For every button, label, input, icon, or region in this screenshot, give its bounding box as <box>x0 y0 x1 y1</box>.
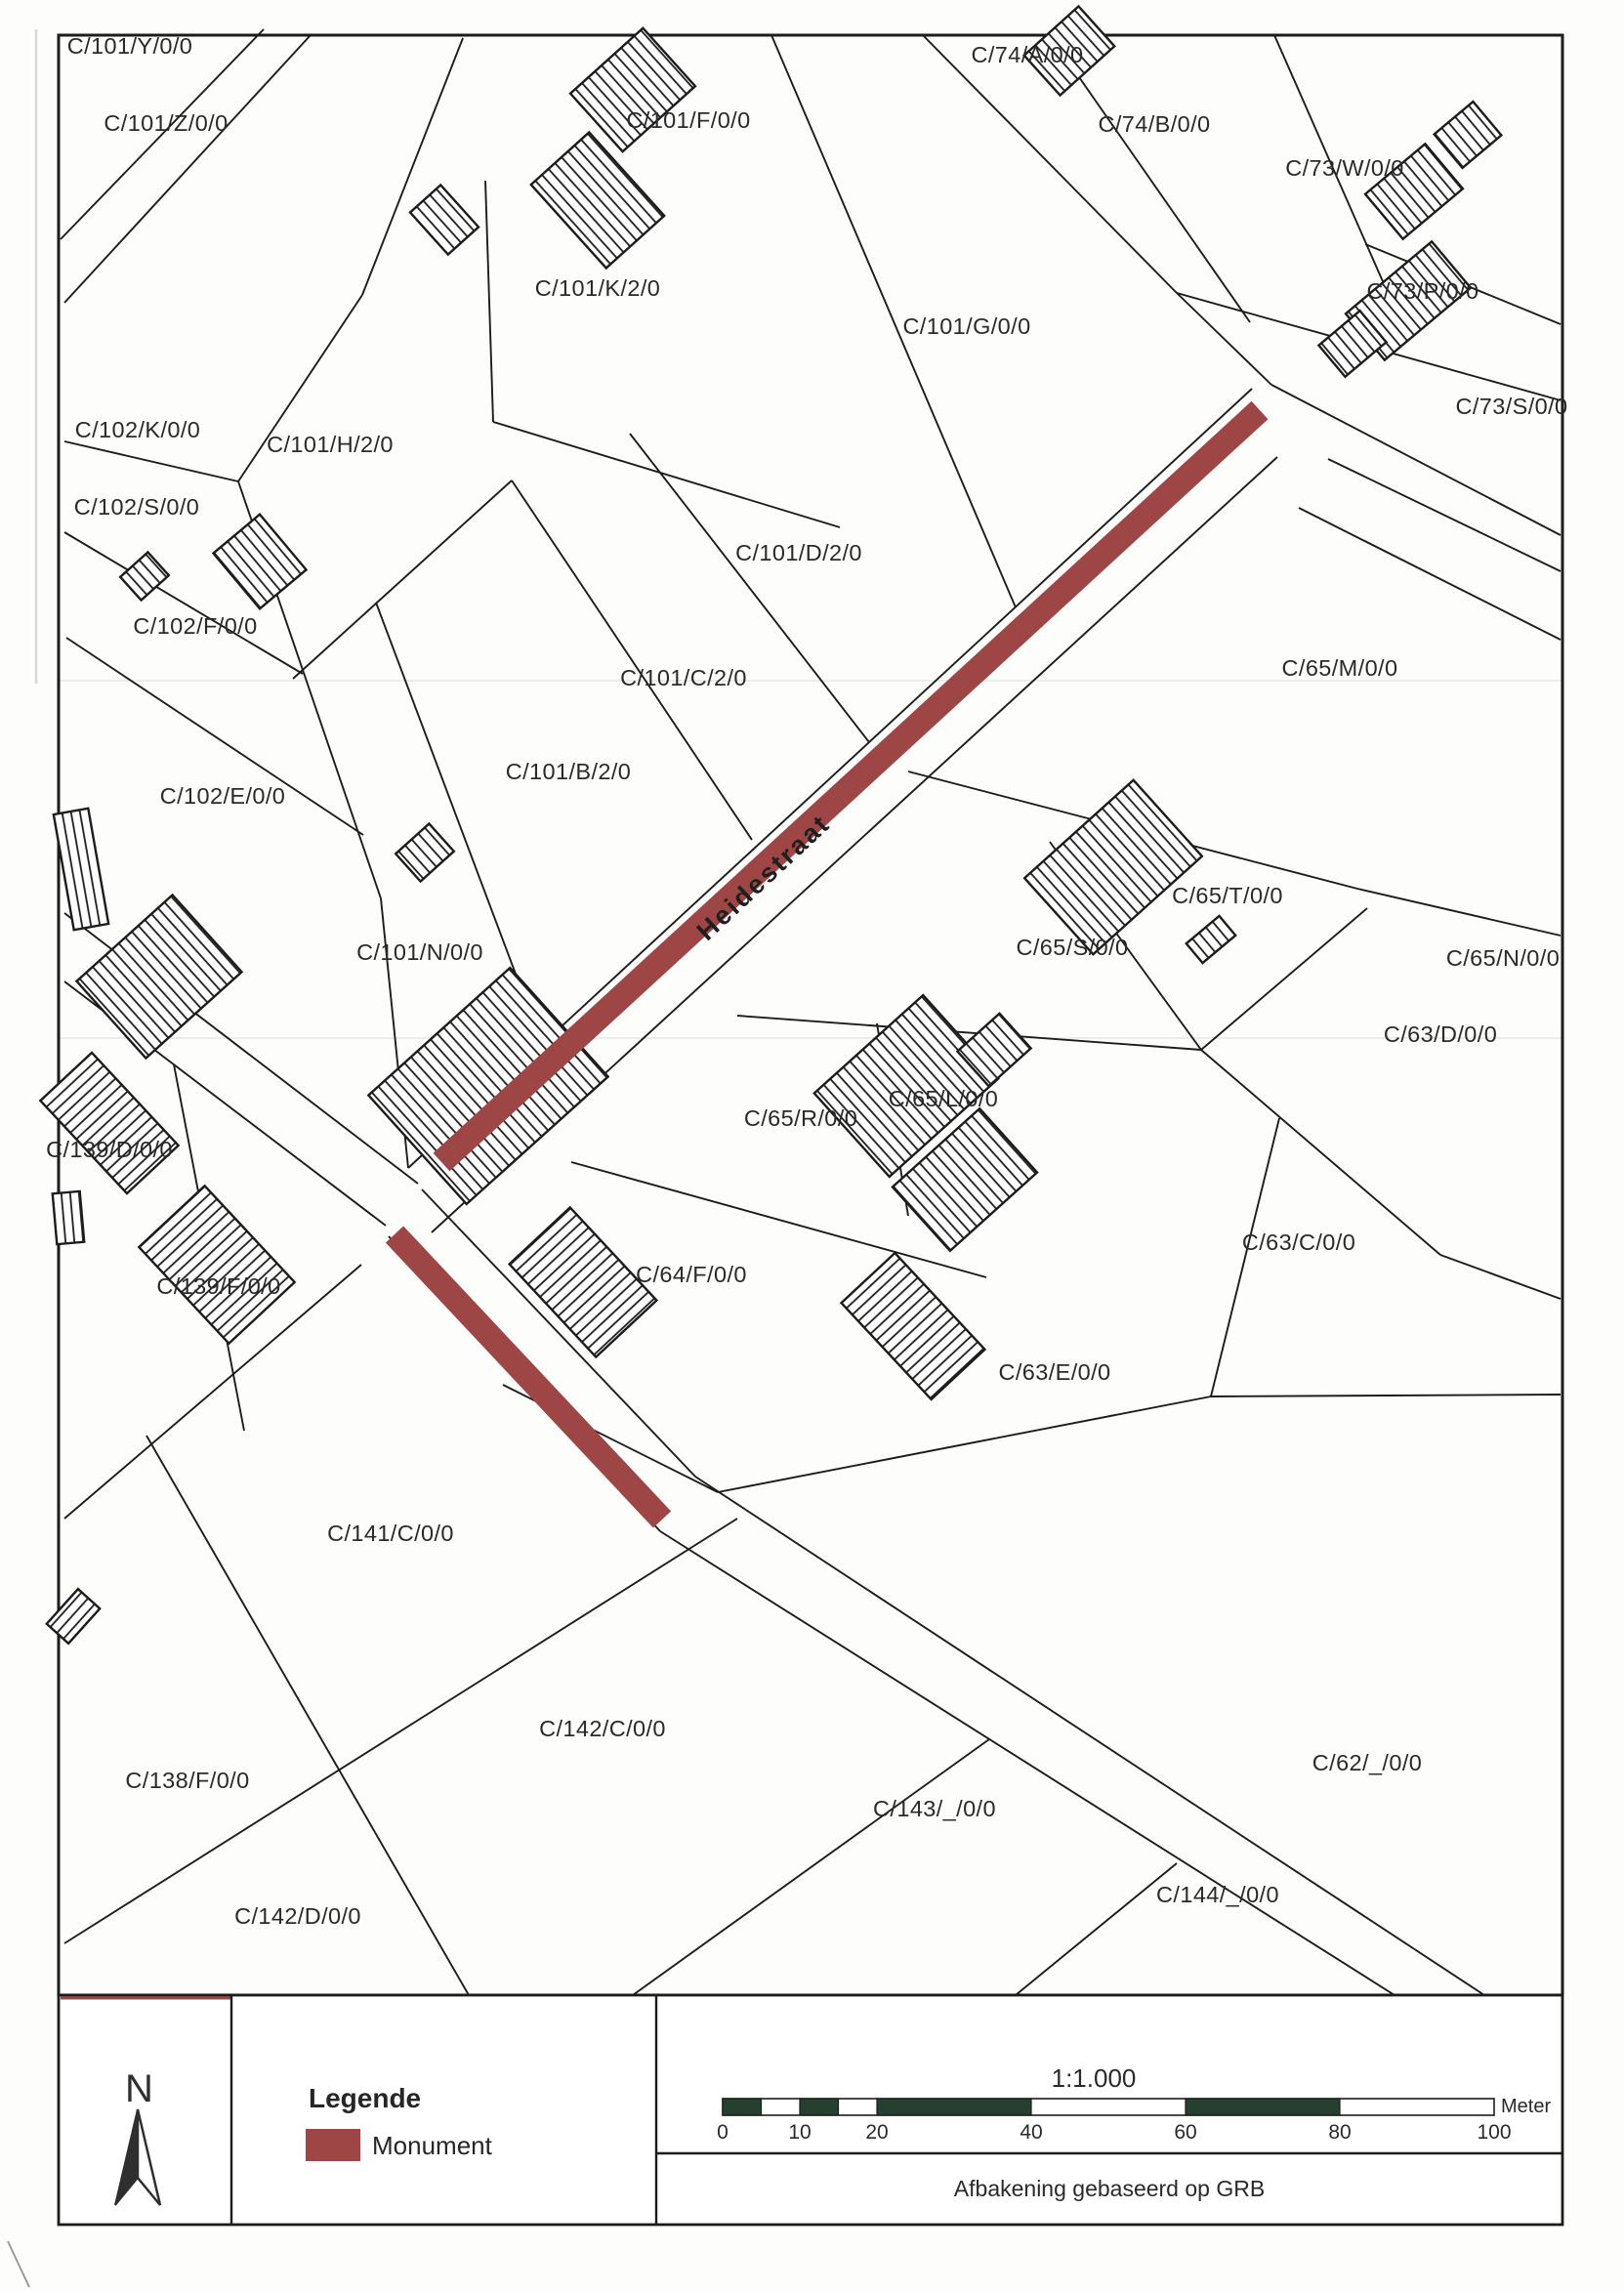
scalebar-segment <box>800 2099 839 2115</box>
parcel-label: C/143/_/0/0 <box>873 1796 996 1821</box>
scalebar-tick-label: 60 <box>1174 2121 1196 2144</box>
parcel-label: C/102/K/0/0 <box>75 417 201 442</box>
parcel-label: C/63/D/0/0 <box>1384 1021 1497 1047</box>
parcel-label: C/139/F/0/0 <box>156 1273 280 1299</box>
parcel-label: C/63/E/0/0 <box>998 1359 1110 1385</box>
parcel-label: C/65/M/0/0 <box>1282 655 1398 681</box>
parcel-label: C/102/S/0/0 <box>74 494 200 520</box>
parcel-label: C/74/B/0/0 <box>1098 111 1210 137</box>
scalebar-segment <box>877 2099 1031 2115</box>
parcel-label: C/142/D/0/0 <box>234 1903 361 1929</box>
scalebar-tick-label: 10 <box>788 2121 811 2144</box>
parcel-label: C/101/F/0/0 <box>626 107 750 133</box>
parcel-label: C/73/S/0/0 <box>1455 394 1567 419</box>
parcel-label: C/101/N/0/0 <box>356 939 483 965</box>
parcel-label: C/101/B/2/0 <box>506 759 632 784</box>
parcel-label: C/142/C/0/0 <box>539 1716 666 1741</box>
legend-monument-swatch <box>306 2129 360 2161</box>
scalebar-tick-label: 20 <box>865 2121 888 2144</box>
legend-title: Legende <box>309 2083 421 2113</box>
parcel-label: C/102/F/0/0 <box>133 613 257 639</box>
parcel-label: C/101/D/2/0 <box>735 540 862 565</box>
parcel-label: C/74/A/0/0 <box>971 42 1083 67</box>
parcel-label: C/101/G/0/0 <box>902 313 1030 339</box>
scalebar-tick-label: 80 <box>1328 2121 1351 2144</box>
legend-monument-label: Monument <box>372 2131 493 2160</box>
scalebar-segment <box>723 2099 762 2115</box>
parcel-label: C/73/P/0/0 <box>1366 278 1478 304</box>
building <box>53 1191 84 1244</box>
scalebar-tick-label: 40 <box>1020 2121 1042 2144</box>
parcel-label: C/102/E/0/0 <box>160 783 286 809</box>
parcel-label: C/144/_/0/0 <box>1156 1882 1279 1907</box>
parcel-label: C/101/C/2/0 <box>620 665 747 690</box>
parcel-label: C/101/Z/0/0 <box>104 110 228 136</box>
parcel-label: C/101/Y/0/0 <box>67 33 193 59</box>
grb-note: Afbakening gebaseerd op GRB <box>954 2176 1265 2201</box>
north-label: N <box>125 2067 153 2110</box>
parcel-label: C/101/H/2/0 <box>267 432 394 457</box>
scalebar-tick-label: 0 <box>717 2121 729 2144</box>
footer: N Legende Monument 1:1.000 0102040608010… <box>59 1995 1562 2225</box>
parcel-label: C/139/D/0/0 <box>46 1137 173 1162</box>
parcel-label: C/138/F/0/0 <box>125 1768 249 1793</box>
parcel-label: C/65/N/0/0 <box>1446 945 1560 971</box>
parcel-label: C/73/W/0/0 <box>1285 155 1404 181</box>
map-document-page: C/101/Y/0/0C/101/Z/0/0C/101/F/0/0C/74/A/… <box>0 0 1624 2292</box>
cadastral-map: C/101/Y/0/0C/101/Z/0/0C/101/F/0/0C/74/A/… <box>0 0 1624 2292</box>
scale-ratio-label: 1:1.000 <box>1052 2063 1137 2093</box>
parcel-label: C/64/F/0/0 <box>636 1262 747 1287</box>
scalebar-tick-label: 100 <box>1477 2121 1511 2144</box>
scalebar-unit-label: Meter <box>1501 2096 1551 2117</box>
parcel-label: C/141/C/0/0 <box>327 1521 454 1546</box>
parcel-label: C/65/L/0/0 <box>889 1086 998 1111</box>
scalebar-segment <box>1186 2099 1340 2115</box>
parcel-label: C/65/R/0/0 <box>744 1105 857 1131</box>
parcel-label: C/63/C/0/0 <box>1242 1229 1355 1255</box>
parcel-label: C/101/K/2/0 <box>535 275 661 301</box>
parcel-label: C/65/T/0/0 <box>1172 883 1283 908</box>
parcel-label: C/65/S/0/0 <box>1016 935 1128 960</box>
parcel-label: C/62/_/0/0 <box>1312 1750 1422 1775</box>
